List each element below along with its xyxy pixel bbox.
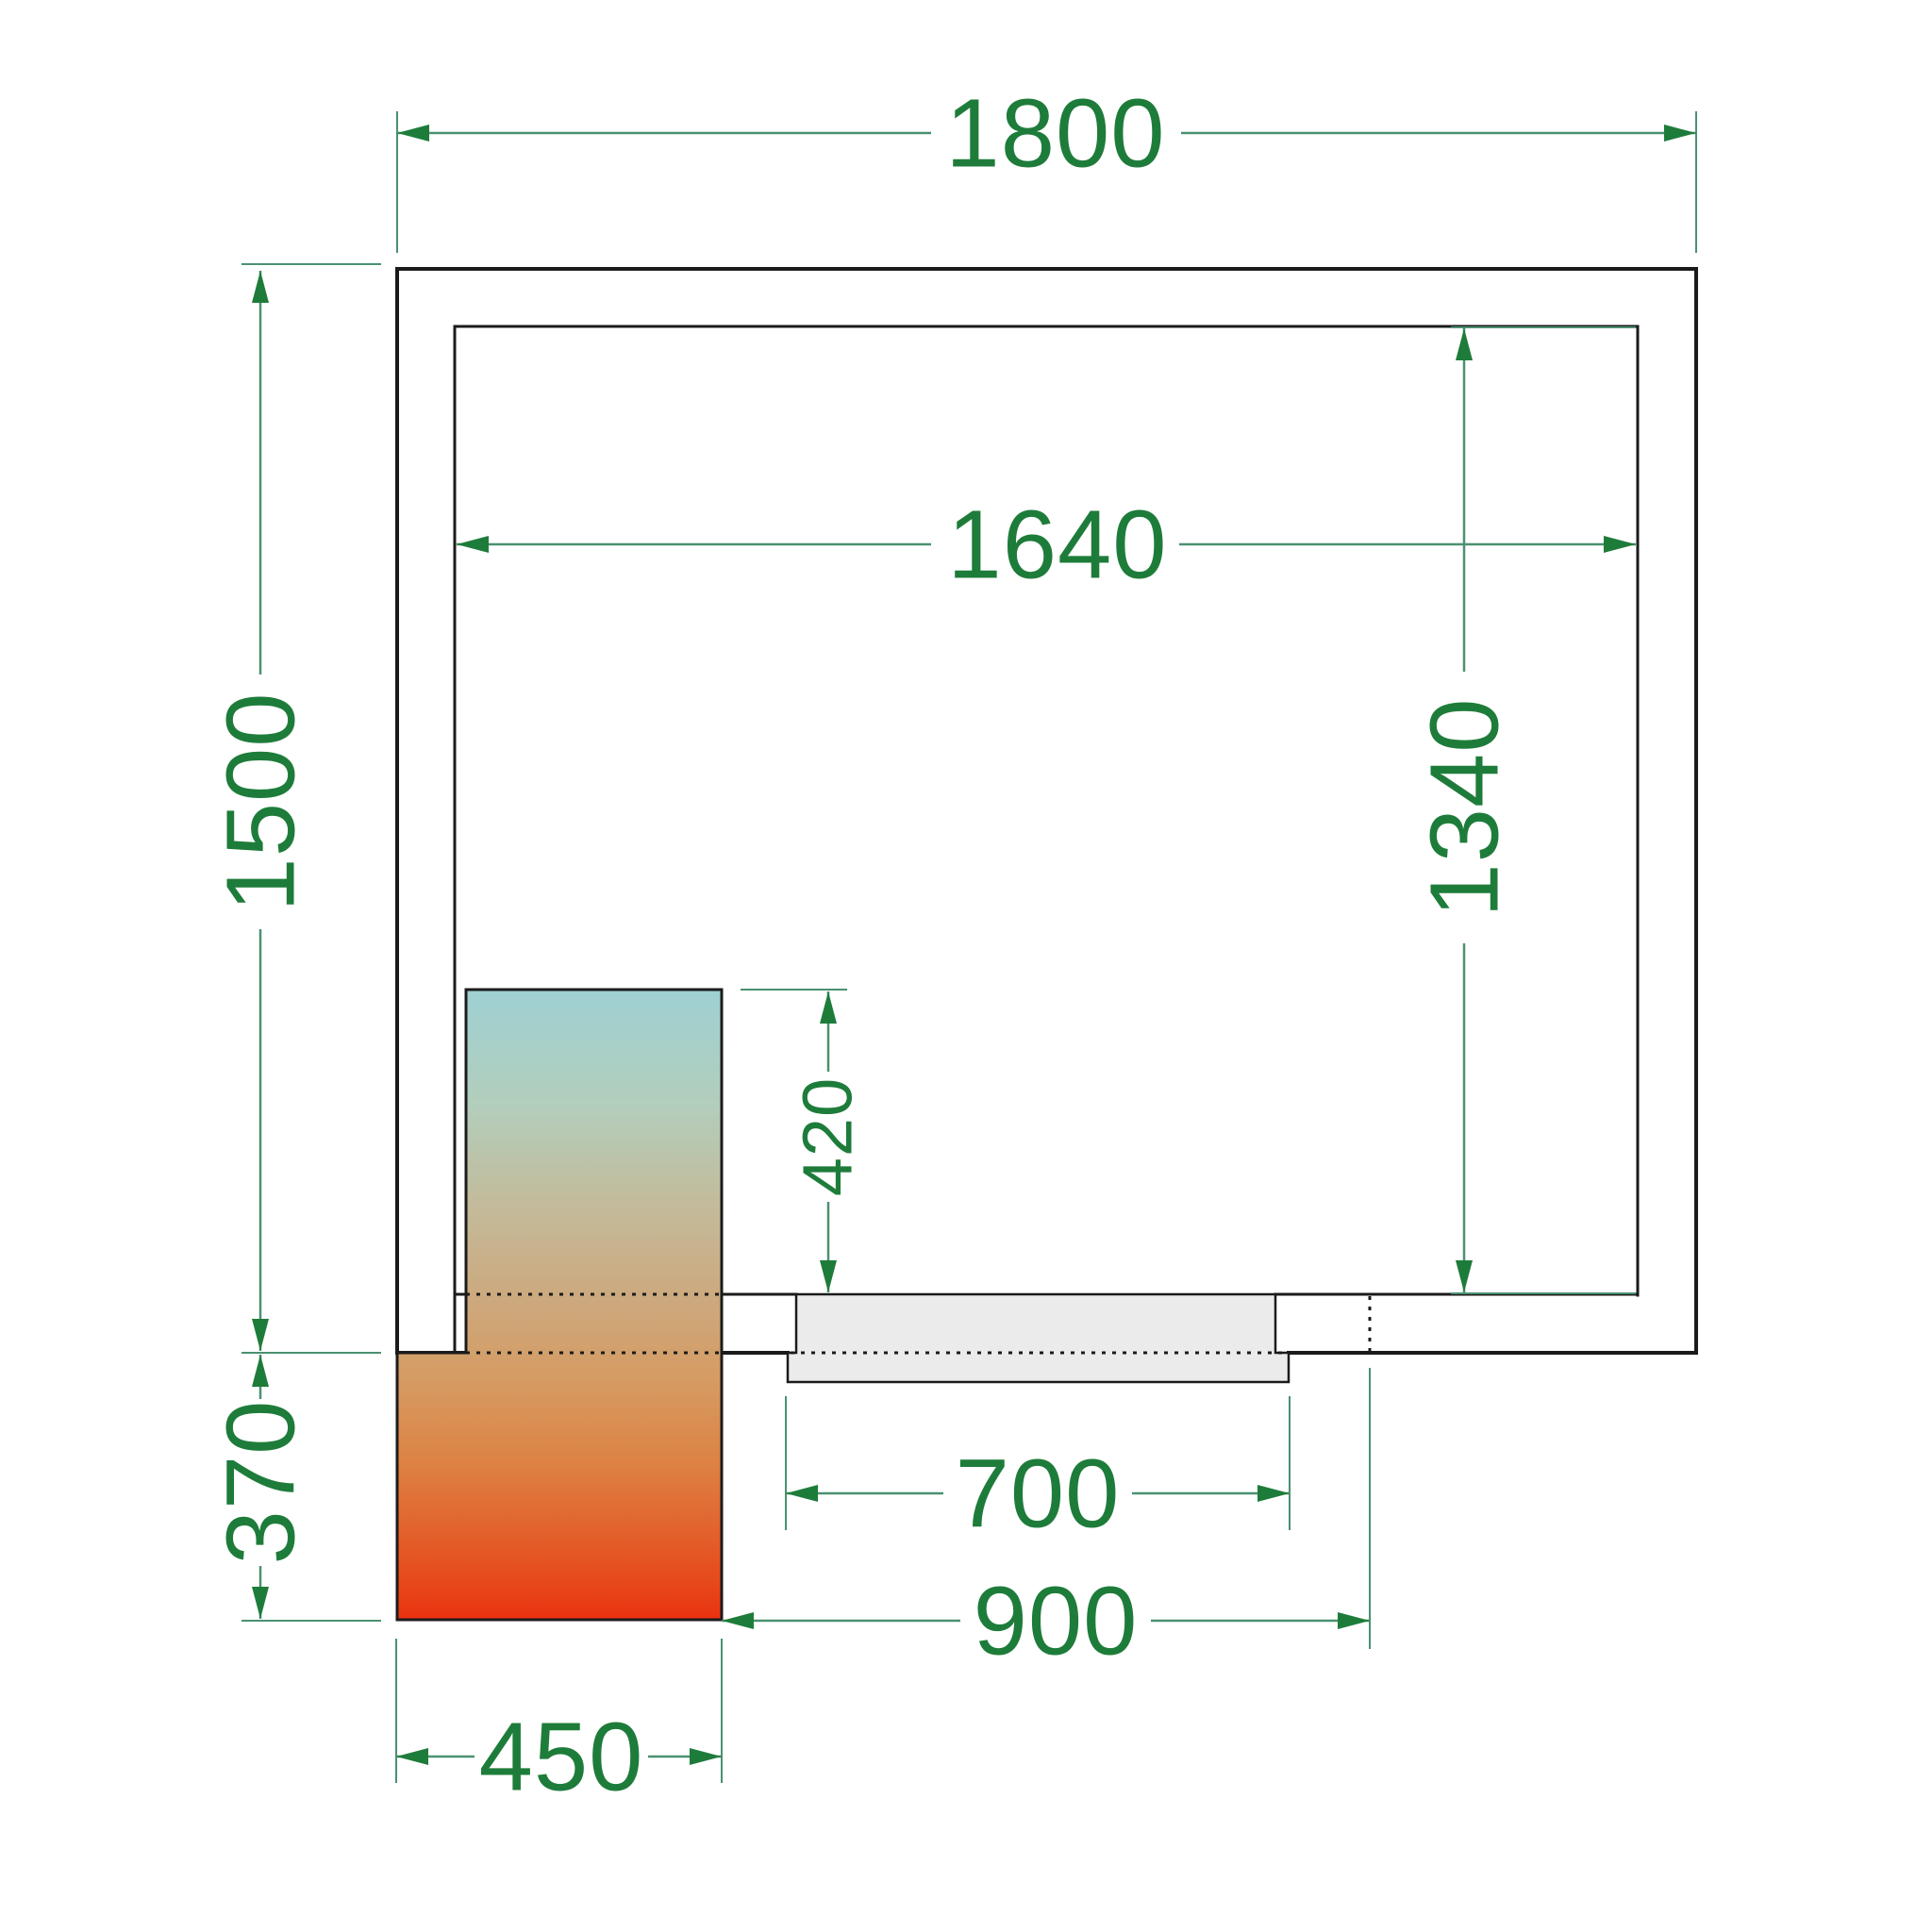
dimension-label-unit-depth-outside: 370: [207, 1400, 315, 1565]
dimension-label-unit-width: 450: [479, 1703, 644, 1811]
dimension-label-outer-depth: 1500: [207, 691, 315, 911]
door-panel: [788, 1294, 1289, 1382]
arrow-down-icon: [820, 1260, 837, 1292]
dimension-unit-depth-outside: 370: [207, 1355, 382, 1621]
arrow-up-icon: [252, 271, 269, 303]
dimension-label-inner-width: 1640: [947, 491, 1167, 599]
arrow-up-icon: [252, 1355, 269, 1387]
dimension-label-outer-width: 1800: [945, 79, 1165, 188]
dimension-unit-depth-inside: 420: [741, 990, 867, 1292]
floor-plan-drawing: 1800 1500 1640: [0, 0, 1932, 1932]
cooling-unit: [397, 990, 722, 1620]
dimension-inner-depth: 1340: [1410, 327, 1637, 1293]
dimension-inner-width: 1640: [457, 491, 1636, 599]
dimension-outer-depth: 1500: [207, 264, 382, 1353]
arrow-right-icon: [1664, 125, 1696, 142]
arrow-right-icon: [1604, 536, 1636, 553]
dimension-unit-width: 450: [396, 1639, 722, 1811]
arrow-left-icon: [397, 125, 429, 142]
arrow-down-icon: [252, 1319, 269, 1351]
room-walls: [397, 269, 1696, 1620]
arrow-left-icon: [457, 536, 489, 553]
dimension-label-unit-depth-inside: 420: [789, 1077, 867, 1196]
dimension-label-door-span: 900: [974, 1567, 1139, 1675]
arrow-left-icon: [396, 1748, 428, 1765]
arrow-right-icon: [1338, 1612, 1370, 1629]
dimension-door-width: 700: [786, 1396, 1290, 1548]
arrow-down-icon: [1456, 1260, 1473, 1292]
dimension-outer-width: 1800: [397, 79, 1696, 254]
arrow-left-icon: [722, 1612, 754, 1629]
arrow-right-icon: [1257, 1485, 1290, 1502]
arrow-left-icon: [786, 1485, 818, 1502]
arrow-up-icon: [820, 991, 837, 1024]
arrow-right-icon: [690, 1748, 722, 1765]
arrow-down-icon: [252, 1587, 269, 1619]
dimension-label-door-width: 700: [956, 1440, 1121, 1548]
dimension-label-inner-depth: 1340: [1410, 697, 1519, 917]
arrow-up-icon: [1456, 328, 1473, 360]
